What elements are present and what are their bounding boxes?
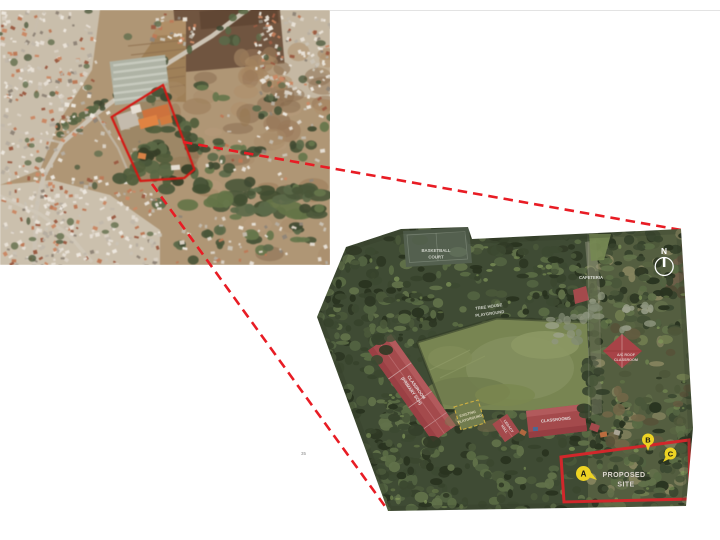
svg-text:35: 35 bbox=[301, 451, 307, 456]
svg-text:N: N bbox=[661, 246, 667, 256]
svg-text:C: C bbox=[668, 450, 674, 459]
svg-text:B: B bbox=[645, 436, 651, 445]
svg-text:SITE: SITE bbox=[617, 482, 634, 489]
svg-text:A: A bbox=[581, 470, 587, 479]
svg-text:PROPOSED: PROPOSED bbox=[603, 472, 646, 479]
